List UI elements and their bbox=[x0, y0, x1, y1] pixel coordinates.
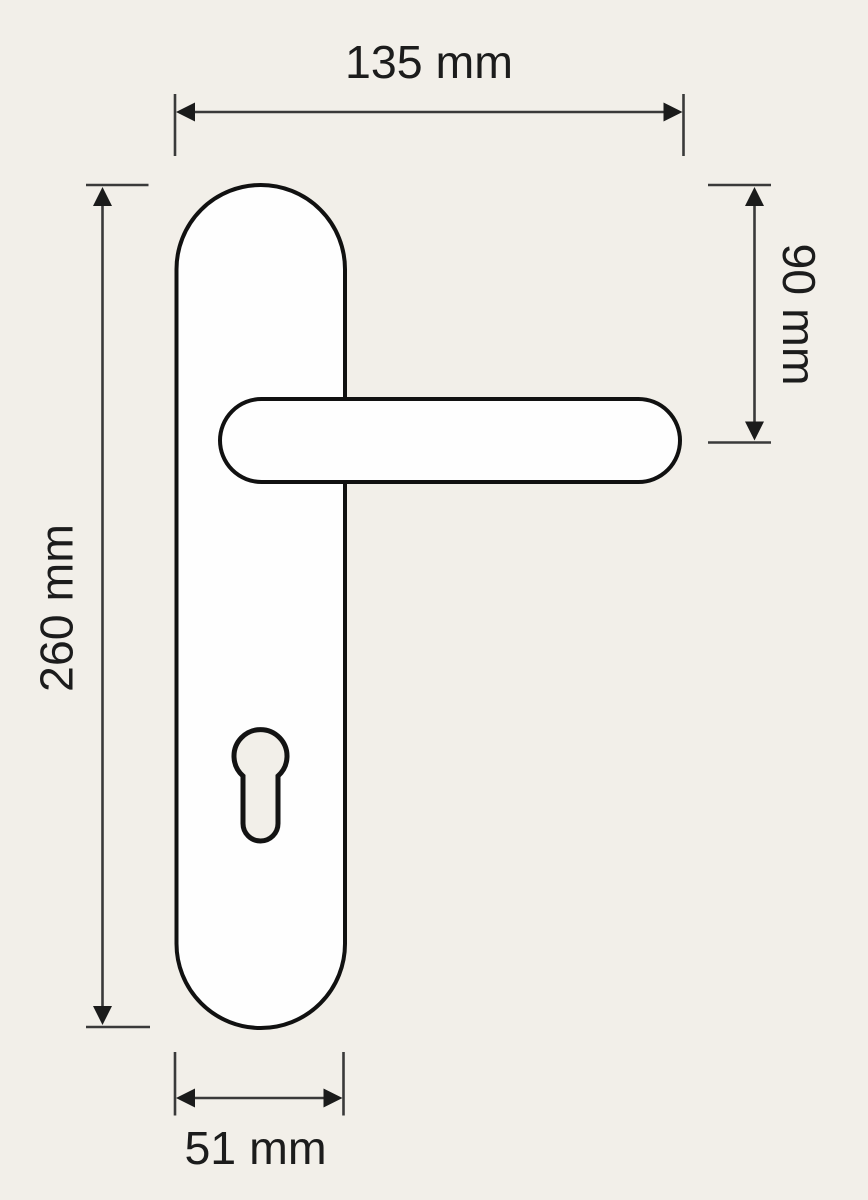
svg-text:90 mm: 90 mm bbox=[773, 243, 825, 385]
svg-text:135 mm: 135 mm bbox=[345, 36, 513, 88]
svg-text:51 mm: 51 mm bbox=[184, 1122, 326, 1174]
svg-text:260 mm: 260 mm bbox=[31, 524, 83, 692]
